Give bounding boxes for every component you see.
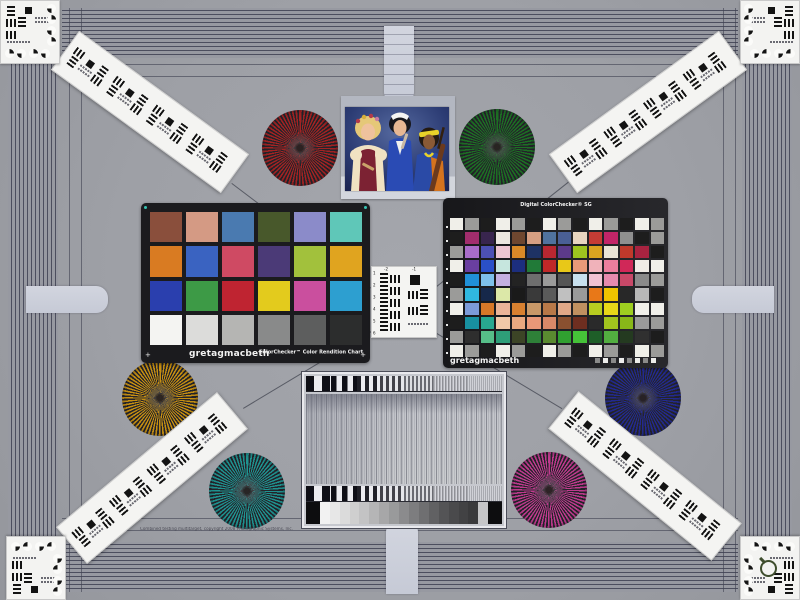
quadrant-registration-mark [11,542,20,551]
color-patch [604,260,617,272]
tribar-pattern [12,573,22,581]
test-chart-scene: gretagmacbeth ColorChecker™ Color Rendit… [0,0,800,600]
color-patch [512,218,525,230]
tribar-pattern [390,311,400,319]
color-patch [186,281,218,311]
tribar-pattern [570,164,582,177]
wedge-step [306,502,320,524]
quadrant-registration-mark [744,565,753,574]
quadrant-registration-mark [47,15,56,24]
edge-tab-left [26,286,108,313]
color-patch [573,345,586,357]
wedge-step [389,502,399,524]
color-patch [651,232,664,244]
resolution-pattern-group [678,500,722,541]
resolution-pattern-group [109,475,152,516]
tribar-pattern [390,287,400,295]
wedge-step [419,502,429,524]
sg-ruler-step [603,358,608,363]
color-patch [543,260,556,272]
resolution-pattern-group [603,109,647,149]
color-patch [635,274,648,286]
color-patch [589,218,602,230]
quadrant-registration-mark [762,542,771,551]
tribar-pattern [784,561,794,569]
sweep-segment [331,486,356,501]
color-patch [573,232,586,244]
tribar-pattern [380,297,388,307]
tribar-pattern [7,6,15,16]
resolution-pattern-group [683,51,727,91]
tribar-pattern [136,94,148,107]
color-patch [527,331,540,343]
color-patch [527,345,540,357]
usaf-scale-number: 4 [373,307,376,312]
color-patch [558,317,571,329]
color-patch [589,274,602,286]
color-patch [604,246,617,258]
color-patch [465,260,478,272]
copyright-caption: Combined testing multitarget, copyright … [140,527,293,532]
color-patch [496,331,509,343]
resolution-pattern-group [145,104,189,144]
color-patch [330,281,362,311]
color-patch [527,218,540,230]
color-patch [651,246,664,258]
registration-dot [144,206,147,209]
color-patch [635,303,648,315]
black-square-mark [768,7,775,14]
usaf-scale-number: 6 [373,331,376,336]
color-patch [620,218,633,230]
color-patch [558,274,571,286]
sweep-segment [433,486,466,501]
color-patch [450,218,463,230]
tribar-pattern [78,535,91,548]
wedge-step [429,502,439,524]
resolution-pattern-group [105,76,149,116]
color-patch [527,317,540,329]
tribar-pattern [12,561,22,569]
quadrant-registration-mark [744,554,753,563]
micro-text-lines [769,41,793,43]
color-patch [604,317,617,329]
color-patch [604,218,617,230]
color-patch [573,317,586,329]
tribar-pattern [408,307,418,315]
sg-title-label: Digital ColorChecker® SG [520,202,591,208]
color-patch [620,303,633,315]
color-patch [527,288,540,300]
colorchecker-title-label: ColorChecker™ Color Rendition Chart [259,349,363,355]
quadrant-registration-mark [744,587,753,596]
colorchecker-24-patches [150,212,362,345]
tribar-pattern [390,299,400,307]
color-patch [604,345,617,357]
wedge-step [359,502,369,524]
color-patch [543,288,556,300]
quadrant-registration-mark [53,587,62,596]
color-patch [589,331,602,343]
quadrant-registration-mark [5,49,14,58]
usaf-scale-number: 2 [373,283,376,288]
usaf-scale-number: 5 [373,319,376,324]
color-patch [512,317,525,329]
color-patch [258,315,290,345]
color-patch [481,303,494,315]
sweep-segment [467,486,502,501]
color-patch [186,315,218,345]
crosshair-mark: + [360,352,366,359]
color-patch [481,260,494,272]
quadrant-registration-mark [53,565,62,574]
color-patch [573,274,586,286]
color-patch [481,232,494,244]
black-square-mark [768,586,775,593]
color-patch [635,232,648,244]
sweep-segment [357,376,381,391]
color-patch [222,281,254,311]
color-patch [635,331,648,343]
sweep-segment [306,486,331,501]
tribar-pattern [216,152,228,165]
color-patch [527,246,540,258]
color-patch [543,303,556,315]
color-patch [512,260,525,272]
color-patch [620,274,633,286]
usaf-scale-number: -1 [412,267,416,272]
tribar-pattern [689,77,701,90]
sweep-fade-overlay [306,394,502,484]
tribar-pattern [6,19,16,27]
color-patch [512,331,525,343]
color-patch [258,212,290,242]
color-patch [465,303,478,315]
quadrant-registration-mark [47,542,56,551]
edge-tab-bottom [386,522,418,594]
black-square-mark [25,7,32,14]
tribar-pattern [784,19,794,27]
tribar-pattern [154,472,167,485]
tribar-pattern [610,135,622,148]
frequency-sweep-chart [302,372,506,528]
color-patch [450,260,463,272]
sg-ruler-step [651,358,656,363]
color-patch [512,232,525,244]
color-patch [651,274,664,286]
wedge-step [478,502,488,524]
quadrant-registration-mark [29,49,38,58]
color-patch [450,303,463,315]
color-patch [512,246,525,258]
wedge-step [350,502,360,524]
color-patch [496,218,509,230]
color-patch [465,232,478,244]
sg-gray-scale-ruler [595,358,656,363]
sg-ruler-step [643,358,648,363]
colorchecker-24-chart: gretagmacbeth ColorChecker™ Color Rendit… [141,203,370,363]
wedge-step [409,502,419,524]
color-patch [294,246,326,276]
quadrant-registration-mark [41,49,50,58]
color-patch [651,288,664,300]
color-patch [465,274,478,286]
siemens-star-teal [209,453,285,529]
color-patch [635,288,648,300]
color-patch [450,274,463,286]
corner-card-bottom-right [740,536,800,600]
sg-ruler-step [635,358,640,363]
sweep-segment [380,486,404,501]
colorchecker-brand-label: gretagmacbeth [189,349,269,359]
tribar-pattern [6,31,16,39]
color-patch [481,246,494,258]
sg-brand-label: gretagmacbeth [450,356,519,365]
sg-ruler-step [619,358,624,363]
color-patch [589,317,602,329]
color-patch [558,303,571,315]
tribar-pattern [13,584,21,594]
color-patch [481,218,494,230]
color-patch [294,315,326,345]
color-patch [620,317,633,329]
color-patch [589,345,602,357]
quadrant-registration-mark [744,4,753,13]
tribar-pattern [380,273,388,283]
color-patch [330,246,362,276]
color-patch [604,232,617,244]
wedge-step [439,502,449,524]
wedge-step [459,502,469,524]
color-patch [512,274,525,286]
colorchecker-sg-patches [450,218,664,357]
color-patch [512,288,525,300]
registration-dot [364,206,367,209]
sweep-segment [433,376,466,391]
color-patch [635,345,648,357]
tribar-pattern [640,477,653,490]
color-patch [465,317,478,329]
tribar-pattern [191,440,204,453]
tribar-pattern [650,106,662,119]
color-patch [543,246,556,258]
quadrant-registration-mark [744,37,753,46]
resolution-pattern-group [184,412,227,453]
quadrant-registration-mark [47,4,56,13]
color-patch [465,246,478,258]
corner-card-top-right [740,0,800,64]
color-patch [573,331,586,343]
tribar-pattern [602,446,615,459]
color-patch [589,303,602,315]
quadrant-registration-mark [750,49,759,58]
resolution-pattern-group [563,407,607,448]
color-patch [496,246,509,258]
color-patch [222,315,254,345]
usaf-resolution-card: -2-1123456 [371,266,437,338]
tribar-pattern [380,321,388,331]
color-patch [294,212,326,242]
micro-text-lines [13,557,37,559]
wedge-step [369,502,379,524]
wedge-step [320,502,330,524]
tribar-pattern [785,584,793,594]
color-patch [558,218,571,230]
sg-row-markers [446,222,448,354]
color-patch [450,232,463,244]
tribar-pattern [24,573,32,583]
color-patch [465,218,478,230]
color-patch [186,246,218,276]
color-patch [573,218,586,230]
color-patch [222,212,254,242]
color-patch [604,303,617,315]
wedge-step [488,502,502,524]
color-patch [465,331,478,343]
color-patch [620,331,633,343]
crosshair-mark: + [145,352,151,359]
color-patch [496,317,509,329]
quadrant-registration-mark [786,542,795,551]
color-patch [620,260,633,272]
quadrant-registration-mark [744,15,753,24]
quadrant-registration-mark [47,37,56,46]
quadrant-registration-mark [47,26,56,35]
resolution-pattern-group [643,80,687,120]
tribar-pattern [380,309,388,319]
color-patch [481,331,494,343]
micro-text-lines [408,323,428,325]
tribar-pattern [420,289,428,299]
color-patch [543,331,556,343]
sweep-segment [404,376,433,391]
tribar-pattern [97,65,109,78]
quadrant-registration-mark [774,542,783,551]
photo-illustration [345,107,449,191]
color-patch [543,218,556,230]
quadrant-registration-mark [23,542,32,551]
tribar-pattern [408,291,418,299]
color-patch [465,288,478,300]
resolution-pattern-group [639,469,683,510]
color-patch [651,303,664,315]
quadrant-registration-mark [762,49,771,58]
color-patch [450,317,463,329]
color-patch [558,246,571,258]
sg-ruler-step [595,358,600,363]
color-patch [589,232,602,244]
black-square-mark [410,275,420,285]
color-patch [450,331,463,343]
color-patch [150,281,182,311]
photo-three-musicians [345,107,449,191]
color-patch [558,345,571,357]
quadrant-registration-mark [35,542,44,551]
color-patch [481,317,494,329]
tribar-pattern [380,285,388,295]
color-patch [620,246,633,258]
color-patch [527,260,540,272]
color-patch [527,232,540,244]
gray-step-wedge [306,501,502,524]
tribar-pattern [774,17,782,27]
wedge-step [399,502,409,524]
quadrant-registration-mark [744,576,753,585]
resolution-pattern-group [564,137,608,177]
tribar-pattern [116,503,129,516]
color-patch [496,303,509,315]
sg-ruler-step [611,358,616,363]
color-patch [222,246,254,276]
color-patch [543,274,556,286]
color-patch [150,315,182,345]
color-patch [481,288,494,300]
tribar-pattern [420,305,428,315]
color-patch [558,260,571,272]
tribar-pattern [18,17,26,27]
color-patch [589,246,602,258]
color-patch [496,288,509,300]
wedge-step [330,502,340,524]
micro-text-lines [7,41,31,43]
color-patch [651,218,664,230]
color-patch [651,260,664,272]
siemens-star-magenta [511,452,587,528]
siemens-star-green [459,109,535,185]
sg-ruler-step [627,358,632,363]
tribar-pattern [66,56,78,69]
tribar-pattern [390,323,400,331]
wedge-step [340,502,350,524]
tribar-pattern [784,31,794,39]
color-patch [635,317,648,329]
sweep-bar-top [306,376,502,392]
color-patch [258,281,290,311]
tribar-pattern [564,416,577,429]
quadrant-registration-mark [53,576,62,585]
color-patch [558,288,571,300]
color-patch [330,212,362,242]
sweep-segment [380,376,404,391]
quadrant-registration-mark [750,542,759,551]
color-patch [496,274,509,286]
color-patch [620,232,633,244]
quadrant-registration-mark [774,49,783,58]
resolution-pattern-group [66,47,110,87]
color-patch [512,303,525,315]
color-patch [294,281,326,311]
color-patch [620,345,633,357]
sweep-segment [306,376,331,391]
color-patch [150,212,182,242]
resolution-pattern-group [146,444,189,485]
color-patch [604,274,617,286]
color-patch [527,303,540,315]
sweep-segment [331,376,356,391]
color-patch [620,288,633,300]
wedge-step [379,502,389,524]
color-patch [496,260,509,272]
tribar-pattern [784,573,794,581]
corner-card-top-left [0,0,60,64]
color-patch [450,288,463,300]
color-patch [450,246,463,258]
color-patch [186,212,218,242]
siemens-star-red [262,110,338,186]
color-patch [604,288,617,300]
color-patch [604,331,617,343]
edge-tab-top [384,26,414,104]
